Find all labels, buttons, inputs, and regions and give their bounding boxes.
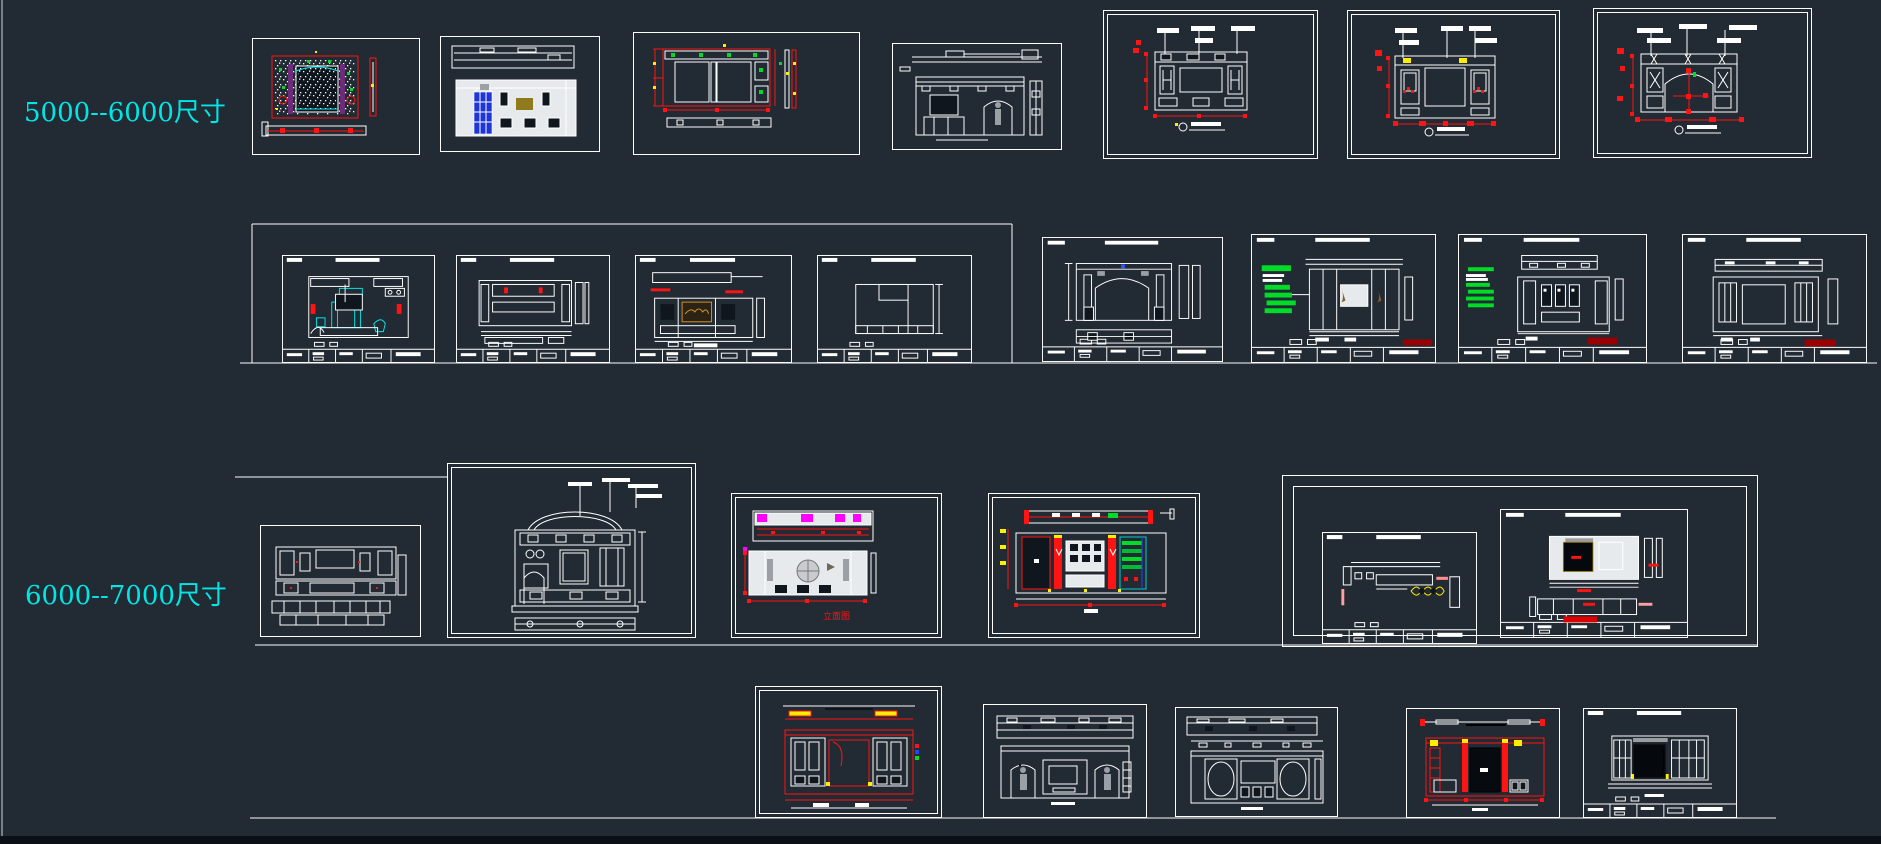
drawing-r3-s6[interactable] (1500, 509, 1688, 638)
drawing-r1-d3[interactable] (633, 32, 860, 155)
drawing-r1-d6[interactable] (1347, 10, 1560, 159)
size-group-label-5000-6000: 5000--6000尺寸 (24, 100, 226, 126)
drawing-r3-d4[interactable] (988, 493, 1200, 638)
drawing-r4-d2[interactable] (983, 704, 1147, 818)
drawing-r2-s8[interactable] (1682, 234, 1867, 363)
title-mark (1179, 122, 1225, 131)
red-caption: 立面图 (823, 610, 850, 622)
drawing-r4-d5[interactable] (1583, 708, 1737, 818)
drawing-r1-d7[interactable] (1593, 8, 1812, 158)
drawing-r2-s5[interactable] (1042, 237, 1223, 362)
drawing-r3-d2[interactable] (460, 474, 690, 632)
drawing-r1-d5[interactable] (1103, 10, 1318, 159)
drawing-r3-d1[interactable] (260, 525, 421, 637)
cad-canvas[interactable]: 5000--6000尺寸 6000--7000尺寸 (0, 0, 1881, 844)
drawing-r4-d1[interactable] (755, 686, 942, 818)
drawing-r2-s4[interactable] (817, 255, 972, 363)
title-mark (1425, 127, 1469, 136)
size-group-label-6000-7000: 6000--7000尺寸 (25, 583, 227, 609)
drawing-r2-s2[interactable] (456, 255, 610, 363)
bottom-bar (0, 836, 1881, 844)
drawing-r4-d4[interactable] (1406, 708, 1560, 818)
drawing-r2-s1[interactable] (282, 255, 435, 363)
drawing-r2-s6[interactable] (1251, 234, 1436, 363)
drawing-r1-d2[interactable] (440, 36, 600, 152)
drawing-r2-s3[interactable] (635, 255, 792, 363)
drawing-r1-d4[interactable] (892, 43, 1062, 150)
drawing-r2-s7[interactable] (1458, 234, 1647, 363)
drawing-r3-s5[interactable] (1322, 532, 1477, 644)
title-mark (1675, 125, 1721, 134)
drawing-r3-d3[interactable]: 立面图 (731, 493, 942, 638)
window-edge-line (1, 0, 3, 844)
drawing-r1-d1[interactable] (252, 38, 420, 155)
drawing-r4-d3[interactable] (1175, 707, 1338, 817)
